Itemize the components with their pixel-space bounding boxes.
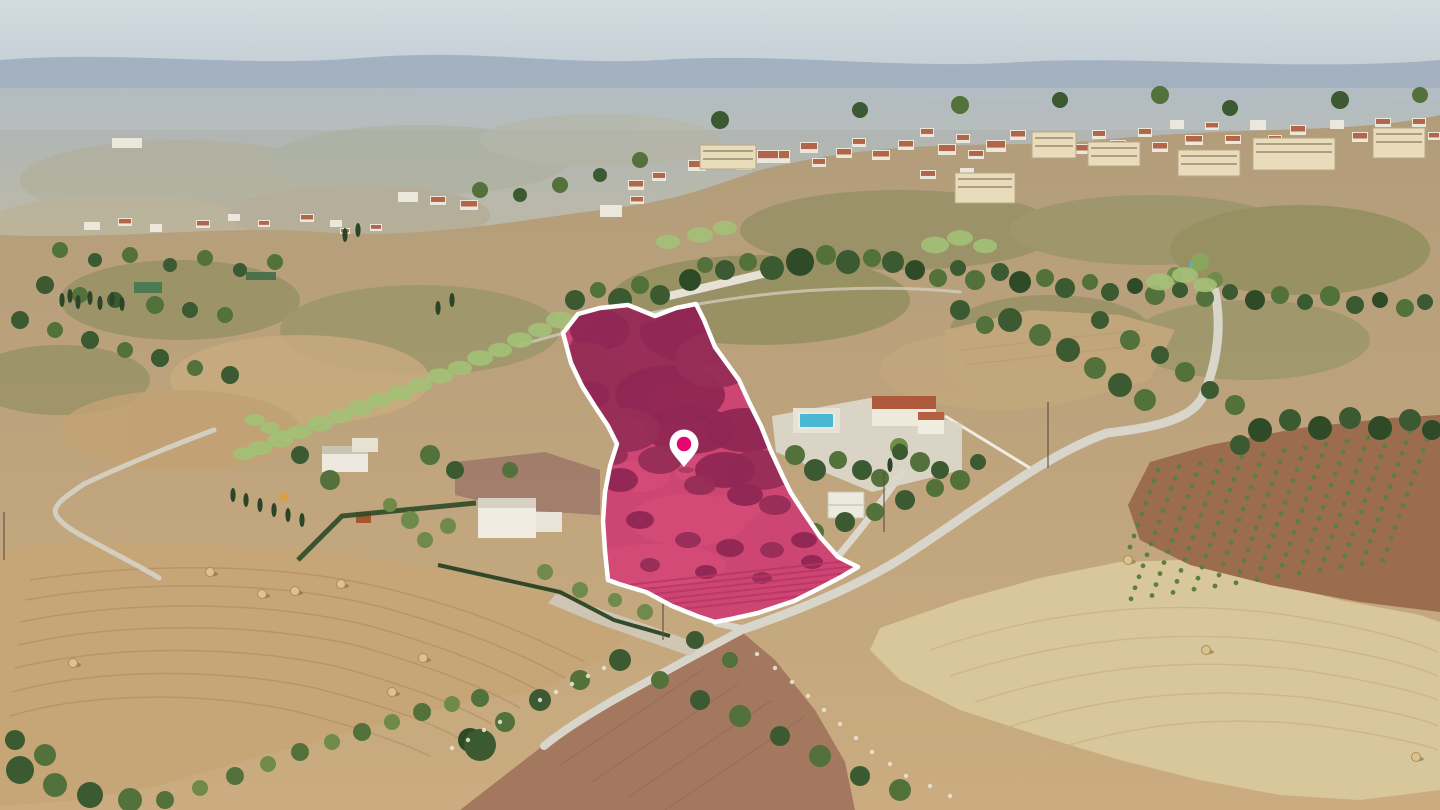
tree bbox=[122, 247, 138, 263]
house-roof bbox=[653, 173, 665, 178]
vine-bush bbox=[1388, 484, 1393, 489]
tree bbox=[931, 461, 949, 479]
vine-bush bbox=[1194, 472, 1199, 477]
house-roof bbox=[119, 219, 131, 223]
tree bbox=[809, 745, 831, 767]
reed-patch bbox=[1193, 278, 1217, 292]
tree bbox=[729, 705, 751, 727]
stone bbox=[755, 652, 759, 656]
tree bbox=[1368, 416, 1392, 440]
house bbox=[150, 224, 162, 232]
vine-bush bbox=[1372, 528, 1377, 533]
tree bbox=[976, 316, 994, 334]
reed-patch bbox=[427, 368, 453, 384]
vine-bush bbox=[1263, 555, 1268, 560]
vine-bush bbox=[1182, 505, 1187, 510]
tree bbox=[151, 349, 169, 367]
house-roof bbox=[1139, 129, 1151, 134]
tree bbox=[1222, 284, 1238, 300]
tree bbox=[117, 342, 133, 358]
vine-bush bbox=[1401, 503, 1406, 508]
reed-patch bbox=[687, 227, 713, 243]
vine-bush bbox=[1198, 461, 1203, 466]
vine-bush bbox=[1345, 439, 1350, 444]
vine-bush bbox=[1166, 549, 1171, 554]
tree bbox=[715, 260, 735, 280]
reed-patch bbox=[947, 230, 973, 246]
vine-bush bbox=[1174, 527, 1179, 532]
vine-bush bbox=[1400, 451, 1405, 456]
tree bbox=[1036, 269, 1054, 287]
house-roof bbox=[259, 221, 269, 225]
cypress-tree bbox=[109, 292, 114, 306]
tree bbox=[182, 302, 198, 318]
house-roof bbox=[813, 159, 825, 164]
tree bbox=[1055, 278, 1075, 298]
cypress-tree bbox=[342, 228, 347, 242]
vine-bush bbox=[1375, 465, 1380, 470]
tree bbox=[420, 445, 440, 465]
hay-bale bbox=[206, 568, 215, 577]
vine-bush bbox=[1240, 455, 1245, 460]
cypress-tree bbox=[97, 296, 102, 310]
vine-bush bbox=[1385, 547, 1390, 552]
reed-patch bbox=[245, 414, 265, 426]
cypress-tree bbox=[299, 513, 304, 527]
tree bbox=[413, 703, 431, 721]
vine-bush bbox=[1347, 542, 1352, 547]
vine-bush bbox=[1304, 497, 1309, 502]
house-roof bbox=[1011, 131, 1025, 137]
tree bbox=[785, 445, 805, 465]
vine-bush bbox=[1233, 529, 1238, 534]
hay-bale bbox=[388, 688, 397, 697]
vine-bush bbox=[1211, 480, 1216, 485]
tree bbox=[1201, 381, 1219, 399]
vine-bush bbox=[1282, 448, 1287, 453]
vine-bush bbox=[1368, 539, 1373, 544]
vine-bush bbox=[1354, 469, 1359, 474]
vine-bush bbox=[1208, 543, 1213, 548]
vine-bush bbox=[1228, 488, 1233, 493]
hay-bale bbox=[258, 590, 267, 599]
vine-bush bbox=[1274, 470, 1279, 475]
tree bbox=[1417, 294, 1433, 310]
vine-bush bbox=[1358, 458, 1363, 463]
tree bbox=[866, 503, 884, 521]
tree bbox=[690, 690, 710, 710]
vine-bush bbox=[1169, 486, 1174, 491]
vine-bush bbox=[1381, 558, 1386, 563]
vine-bush bbox=[1152, 479, 1157, 484]
pin-dot bbox=[677, 437, 691, 451]
vine-bush bbox=[1257, 463, 1262, 468]
tree bbox=[850, 766, 870, 786]
tree bbox=[464, 729, 496, 761]
tree bbox=[233, 263, 247, 277]
tree bbox=[156, 791, 174, 809]
vine-bush bbox=[1300, 508, 1305, 513]
tree bbox=[631, 276, 649, 294]
tree bbox=[1396, 299, 1414, 317]
vine-bush bbox=[1309, 538, 1314, 543]
cypress-tree bbox=[230, 488, 235, 502]
tree bbox=[929, 269, 947, 287]
vine-bush bbox=[1279, 511, 1284, 516]
cypress-tree bbox=[271, 503, 276, 517]
tree bbox=[637, 604, 653, 620]
house-roof bbox=[1291, 126, 1305, 132]
tree bbox=[1308, 416, 1332, 440]
vine-bush bbox=[1178, 516, 1183, 521]
vine-bush bbox=[1165, 497, 1170, 502]
reed-patch bbox=[973, 239, 997, 253]
tree bbox=[786, 248, 814, 276]
vine-bush bbox=[1308, 486, 1313, 491]
house bbox=[1250, 120, 1266, 130]
tree bbox=[1297, 294, 1313, 310]
reed-patch bbox=[1172, 267, 1198, 283]
tree bbox=[1056, 338, 1080, 362]
vine-bush bbox=[1237, 518, 1242, 523]
vine-bush bbox=[1199, 513, 1204, 518]
tree bbox=[998, 308, 1022, 332]
house-roof bbox=[629, 181, 643, 187]
house bbox=[398, 192, 418, 202]
vine-bush bbox=[1267, 544, 1272, 549]
vine-bush bbox=[1339, 564, 1344, 569]
vine-bush bbox=[1303, 445, 1308, 450]
tree bbox=[52, 242, 68, 258]
vine-bush bbox=[1204, 554, 1209, 559]
vine-bush bbox=[1195, 524, 1200, 529]
tree bbox=[221, 366, 239, 384]
vine-bush bbox=[1325, 494, 1330, 499]
hay-bale bbox=[337, 580, 346, 589]
tree bbox=[417, 532, 433, 548]
house-roof bbox=[1413, 119, 1425, 124]
vine-bush bbox=[1266, 492, 1271, 497]
tree bbox=[1230, 435, 1250, 455]
tree bbox=[1339, 407, 1361, 429]
tree bbox=[950, 470, 970, 490]
cypress-tree bbox=[75, 295, 80, 309]
vine-bush bbox=[1350, 480, 1355, 485]
house-roof bbox=[758, 151, 778, 158]
vine-bush bbox=[1405, 492, 1410, 497]
tree bbox=[905, 260, 925, 280]
cypress-tree bbox=[435, 301, 440, 315]
vine-bush bbox=[1212, 532, 1217, 537]
tree bbox=[1172, 282, 1188, 298]
tree bbox=[1108, 373, 1132, 397]
house-roof bbox=[431, 197, 445, 202]
tree bbox=[1222, 100, 1238, 116]
green-net bbox=[246, 272, 276, 280]
vine-bush bbox=[1276, 574, 1281, 579]
cypress-tree bbox=[449, 293, 454, 307]
tree bbox=[804, 459, 826, 481]
tree bbox=[863, 249, 881, 267]
vine-bush bbox=[1346, 491, 1351, 496]
house-roof bbox=[301, 215, 313, 219]
tree bbox=[1331, 91, 1349, 109]
tree bbox=[1248, 418, 1272, 442]
vine-bush bbox=[1153, 530, 1158, 535]
vine-bush bbox=[1280, 563, 1285, 568]
tree bbox=[88, 253, 102, 267]
stone bbox=[806, 694, 810, 698]
house-roof bbox=[1186, 136, 1202, 142]
house-roof bbox=[957, 135, 969, 140]
hay-bale bbox=[69, 659, 78, 668]
vine-bush bbox=[1133, 585, 1138, 590]
house-roof bbox=[1429, 133, 1439, 137]
house-roof bbox=[899, 141, 913, 147]
house-roof bbox=[631, 197, 643, 201]
vine-bush bbox=[1338, 513, 1343, 518]
stone bbox=[870, 750, 874, 754]
vine-bush bbox=[1409, 481, 1414, 486]
tree bbox=[226, 767, 244, 785]
tree bbox=[1372, 292, 1388, 308]
house-roof bbox=[853, 139, 865, 144]
house bbox=[330, 220, 342, 227]
tree bbox=[570, 670, 590, 690]
vine-bush bbox=[1288, 541, 1293, 546]
tree bbox=[472, 182, 488, 198]
tree bbox=[197, 250, 213, 266]
vine-bush bbox=[1376, 517, 1381, 522]
vine-bush bbox=[1136, 523, 1141, 528]
stone bbox=[838, 722, 842, 726]
tree bbox=[217, 307, 233, 323]
tree bbox=[1399, 409, 1421, 431]
tree bbox=[829, 451, 847, 469]
tree bbox=[77, 782, 103, 808]
tree bbox=[686, 631, 704, 649]
tree bbox=[81, 331, 99, 349]
tree bbox=[384, 714, 400, 730]
vine-bush bbox=[1305, 549, 1310, 554]
vine-bush bbox=[1154, 582, 1159, 587]
house-roof bbox=[921, 129, 933, 134]
tree bbox=[1175, 362, 1195, 382]
vine-bush bbox=[1396, 462, 1401, 467]
cypress-tree bbox=[887, 458, 892, 472]
pin-shadow bbox=[678, 467, 694, 473]
stone bbox=[538, 698, 542, 702]
vine-bush bbox=[1249, 485, 1254, 490]
vine-bush bbox=[1191, 535, 1196, 540]
vine-bush bbox=[1190, 483, 1195, 488]
tree bbox=[11, 311, 29, 329]
tree bbox=[1225, 395, 1245, 415]
vine-bush bbox=[1296, 519, 1301, 524]
cypress-tree bbox=[59, 293, 64, 307]
vine-bush bbox=[1301, 560, 1306, 565]
tree bbox=[991, 263, 1009, 281]
cypress-tree bbox=[87, 291, 92, 305]
tree bbox=[513, 188, 527, 202]
vine-bush bbox=[1157, 519, 1162, 524]
tree bbox=[552, 177, 568, 193]
vine-bush bbox=[1177, 464, 1182, 469]
tree bbox=[852, 460, 872, 480]
vine-bush bbox=[1334, 524, 1339, 529]
tree bbox=[146, 296, 164, 314]
stone bbox=[450, 746, 454, 750]
vine-bush bbox=[1383, 443, 1388, 448]
stone bbox=[773, 666, 777, 670]
tree bbox=[1127, 278, 1143, 294]
house bbox=[112, 138, 142, 148]
reed-patch bbox=[528, 323, 552, 337]
tree bbox=[5, 730, 25, 750]
reed-patch bbox=[507, 332, 533, 348]
vine-bush bbox=[1213, 584, 1218, 589]
vine-bush bbox=[1132, 534, 1137, 539]
house-roof bbox=[1376, 119, 1390, 124]
tree bbox=[1279, 409, 1301, 431]
tree bbox=[835, 512, 855, 532]
vine-bush bbox=[1343, 553, 1348, 558]
vine-bush bbox=[1326, 546, 1331, 551]
stone bbox=[928, 784, 932, 788]
stone bbox=[482, 728, 486, 732]
house bbox=[1170, 120, 1184, 129]
swimming-pool bbox=[799, 413, 834, 428]
tree bbox=[267, 254, 283, 270]
vine-bush bbox=[1421, 448, 1426, 453]
vine-bush bbox=[1389, 536, 1394, 541]
tree bbox=[852, 102, 868, 118]
vine-bush bbox=[1192, 587, 1197, 592]
vine-bush bbox=[1196, 576, 1201, 581]
house bbox=[1330, 120, 1344, 129]
vine-bush bbox=[1278, 459, 1283, 464]
vine-bush bbox=[1379, 454, 1384, 459]
tree bbox=[970, 454, 986, 470]
house-roof bbox=[801, 143, 817, 149]
tree bbox=[192, 780, 208, 796]
vine-bush bbox=[1295, 467, 1300, 472]
hay-bale bbox=[1202, 646, 1211, 655]
tree bbox=[324, 734, 340, 750]
tree bbox=[43, 773, 67, 797]
tree bbox=[816, 245, 836, 265]
tree bbox=[910, 452, 930, 472]
vine-bush bbox=[1324, 442, 1329, 447]
vine-bush bbox=[1287, 489, 1292, 494]
stone bbox=[904, 774, 908, 778]
tree bbox=[401, 511, 419, 529]
vine-bush bbox=[1367, 487, 1372, 492]
vine-bush bbox=[1317, 516, 1322, 521]
vine-bush bbox=[1404, 440, 1409, 445]
tree bbox=[871, 469, 889, 487]
vine-bush bbox=[1342, 502, 1347, 507]
vine-bush bbox=[1320, 453, 1325, 458]
tree bbox=[593, 168, 607, 182]
vine-bush bbox=[1221, 562, 1226, 567]
vine-bush bbox=[1217, 573, 1222, 578]
tree bbox=[1101, 283, 1119, 301]
cypress-tree bbox=[285, 508, 290, 522]
vine-bush bbox=[1149, 541, 1154, 546]
vine-bush bbox=[1129, 596, 1134, 601]
vine-bush bbox=[1254, 525, 1259, 530]
tree bbox=[711, 111, 729, 129]
tree bbox=[739, 253, 757, 271]
vine-bush bbox=[1128, 545, 1133, 550]
vine-bush bbox=[1316, 464, 1321, 469]
tree bbox=[320, 470, 340, 490]
vine-bush bbox=[1364, 550, 1369, 555]
tree bbox=[163, 258, 177, 272]
vine-bush bbox=[1187, 546, 1192, 551]
vine-bush bbox=[1220, 510, 1225, 515]
tree bbox=[1134, 389, 1156, 411]
vine-bush bbox=[1261, 452, 1266, 457]
stone bbox=[466, 738, 470, 742]
vine-bush bbox=[1150, 593, 1155, 598]
vine-bush bbox=[1245, 496, 1250, 501]
tree bbox=[1191, 253, 1209, 271]
tree bbox=[951, 96, 969, 114]
vine-bush bbox=[1207, 491, 1212, 496]
tree bbox=[950, 300, 970, 320]
tree bbox=[502, 462, 518, 478]
vine-bush bbox=[1322, 557, 1327, 562]
tree bbox=[722, 652, 738, 668]
stone bbox=[822, 708, 826, 712]
vine-bush bbox=[1333, 472, 1338, 477]
tree bbox=[1009, 271, 1031, 293]
vine-bush bbox=[1380, 506, 1385, 511]
tree bbox=[679, 269, 701, 291]
vine-bush bbox=[1158, 571, 1163, 576]
tree bbox=[836, 250, 860, 274]
vine-bush bbox=[1313, 527, 1318, 532]
vine-bush bbox=[1270, 481, 1275, 486]
tree bbox=[6, 756, 34, 784]
vine-bush bbox=[1359, 509, 1364, 514]
tree bbox=[1082, 274, 1098, 290]
tree bbox=[537, 564, 553, 580]
stone bbox=[790, 680, 794, 684]
tree bbox=[1151, 86, 1169, 104]
tree bbox=[926, 479, 944, 497]
vine-bush bbox=[1371, 476, 1376, 481]
vine-bush bbox=[1355, 520, 1360, 525]
vine-bush bbox=[1275, 522, 1280, 527]
tree bbox=[446, 461, 464, 479]
tree bbox=[34, 744, 56, 766]
tree bbox=[353, 723, 371, 741]
vine-bush bbox=[1175, 579, 1180, 584]
stone bbox=[854, 736, 858, 740]
tree bbox=[892, 444, 908, 460]
house-roof bbox=[371, 225, 381, 229]
house bbox=[84, 222, 100, 230]
vine-bush bbox=[1156, 468, 1161, 473]
stone bbox=[570, 682, 574, 686]
vine-bush bbox=[1384, 495, 1389, 500]
vine-bush bbox=[1262, 503, 1267, 508]
cypress-tree bbox=[257, 498, 262, 512]
house-roof bbox=[1226, 136, 1240, 141]
